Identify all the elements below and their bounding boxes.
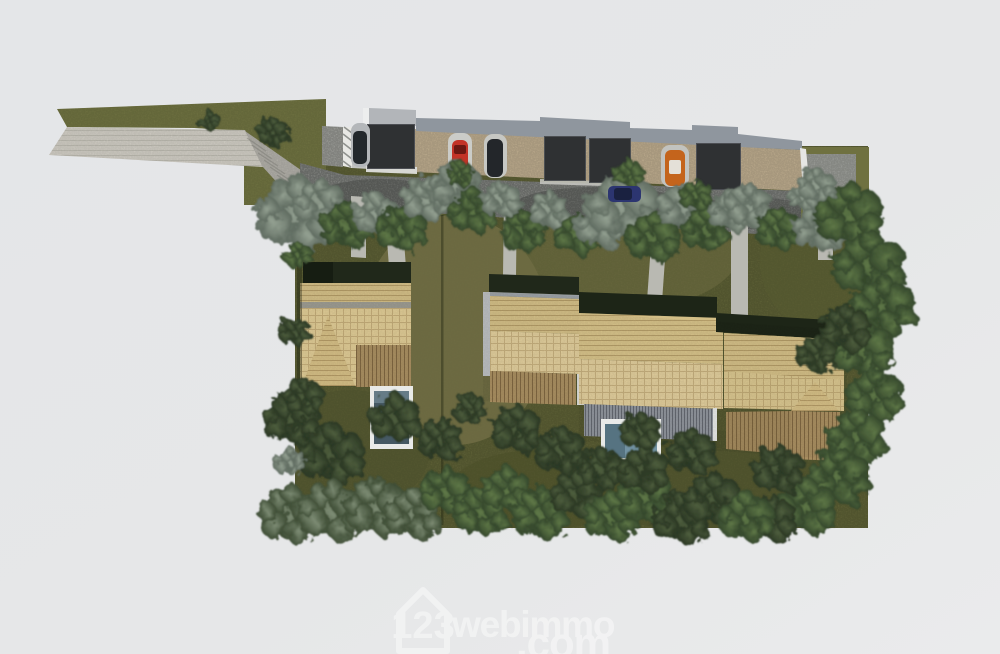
svg-text:.com: .com	[516, 619, 610, 654]
svg-text:123: 123	[391, 605, 454, 647]
